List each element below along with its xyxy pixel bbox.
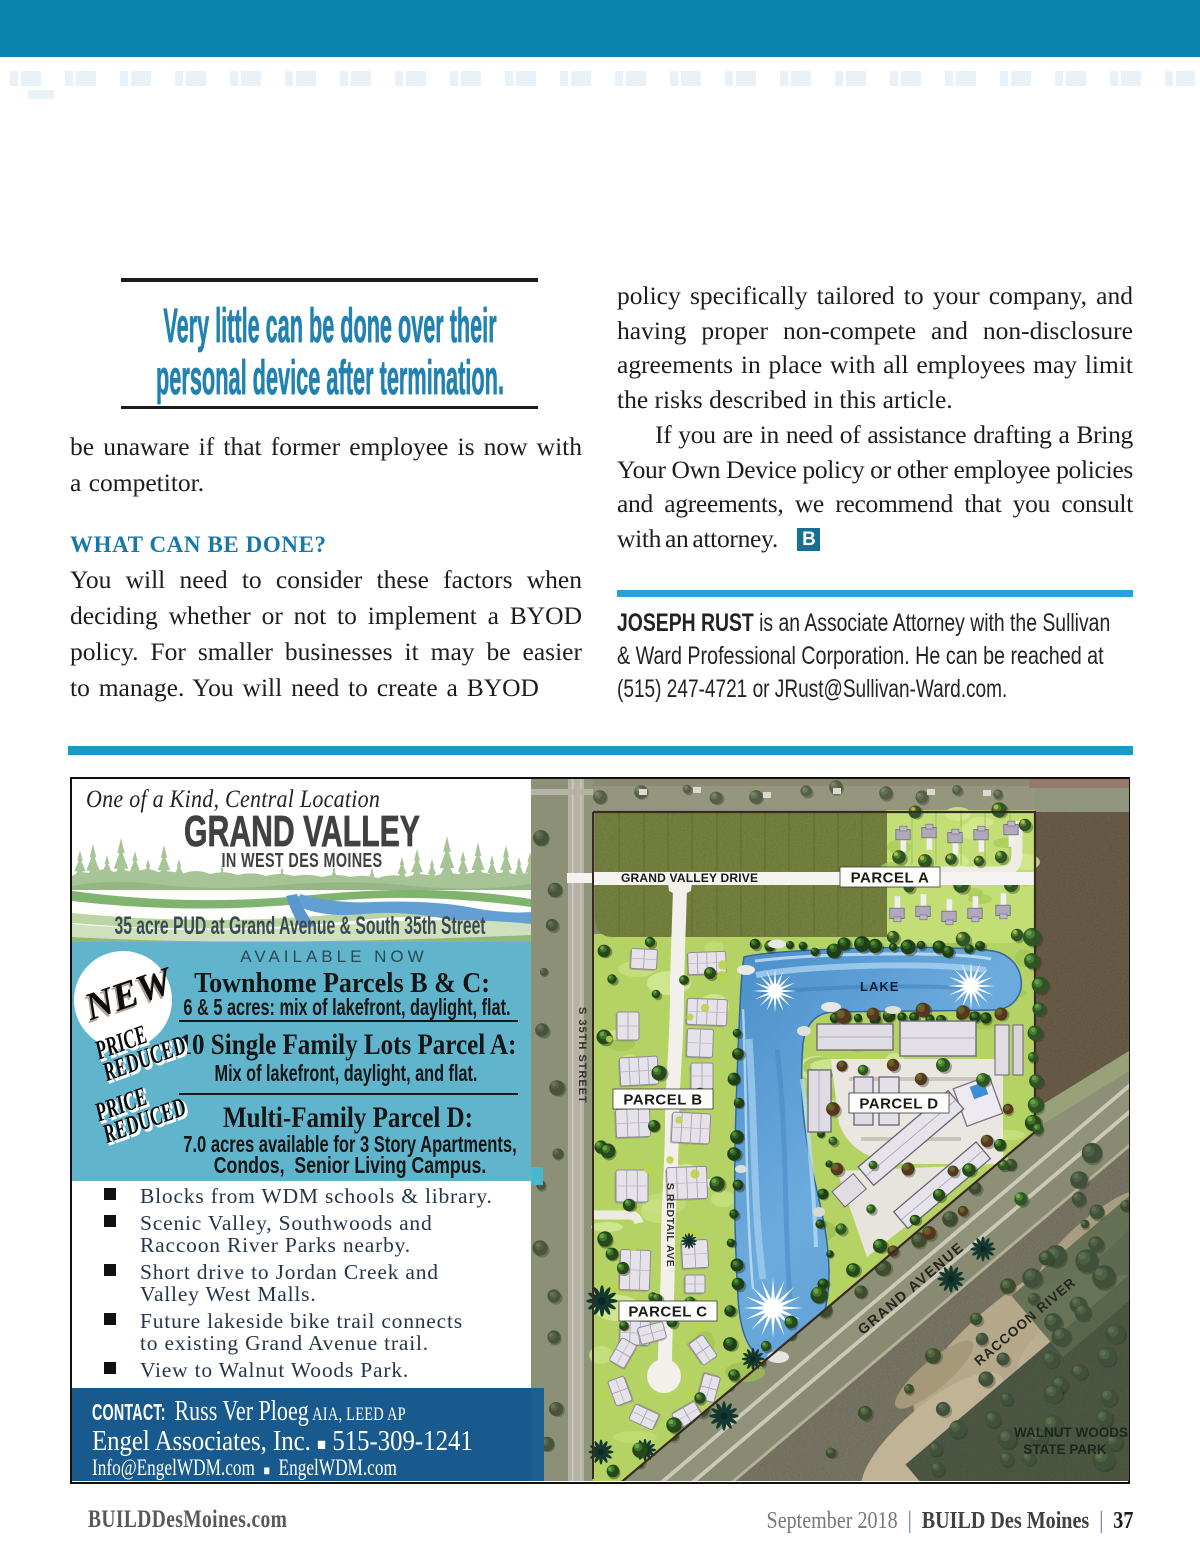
svg-text:PARCEL C: PARCEL C <box>628 1304 707 1321</box>
svg-text:STATE PARK: STATE PARK <box>1023 1442 1106 1457</box>
svg-text:PARCEL D: PARCEL D <box>859 1096 938 1113</box>
svg-text:LAKE: LAKE <box>860 979 899 994</box>
svg-text:S REDTAIL AVE: S REDTAIL AVE <box>664 1183 676 1267</box>
svg-text:WALNUT WOODS: WALNUT WOODS <box>1014 1425 1128 1440</box>
svg-text:S 35TH STREET: S 35TH STREET <box>576 1007 588 1104</box>
svg-text:PARCEL B: PARCEL B <box>623 1092 702 1109</box>
svg-text:GRAND VALLEY DRIVE: GRAND VALLEY DRIVE <box>621 871 758 885</box>
svg-text:PARCEL A: PARCEL A <box>851 870 930 887</box>
